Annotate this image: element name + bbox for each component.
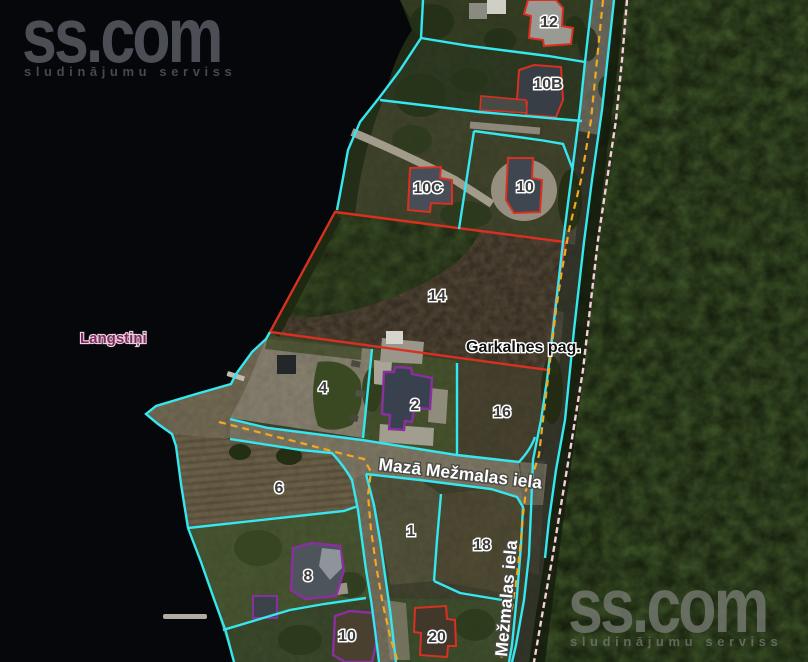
svg-text:12: 12 [540, 14, 558, 31]
svg-text:4: 4 [319, 380, 328, 397]
svg-text:8: 8 [304, 568, 313, 585]
svg-text:6: 6 [275, 480, 284, 497]
svg-text:20: 20 [428, 629, 446, 646]
svg-text:1: 1 [407, 523, 416, 540]
svg-text:18: 18 [473, 537, 491, 554]
svg-text:Garkalnes pag.: Garkalnes pag. [466, 339, 581, 356]
svg-text:16: 16 [493, 404, 511, 421]
svg-text:10: 10 [516, 179, 534, 196]
svg-text:Langstiņi: Langstiņi [80, 330, 147, 347]
svg-text:10: 10 [338, 628, 356, 645]
svg-text:10C: 10C [413, 180, 443, 197]
svg-text:14: 14 [428, 288, 446, 305]
svg-text:10B: 10B [533, 76, 562, 93]
svg-text:2: 2 [411, 397, 420, 414]
